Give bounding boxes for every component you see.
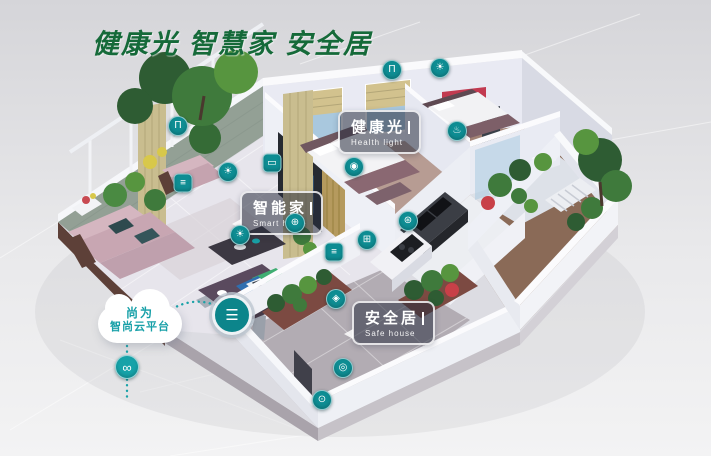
- cursor-bar: [422, 312, 424, 325]
- callout-health-light-en: Health light: [351, 138, 410, 147]
- cloud-platform-subtitle: 智尚云平台: [98, 321, 182, 335]
- callout-safe-house-en: Safe house: [365, 329, 424, 338]
- cloud-platform-badge: 尚为 智尚云平台: [98, 305, 182, 343]
- cloud-platform-name: 尚为: [98, 306, 182, 321]
- callout-smart-home: 智能家 Smart home: [240, 191, 323, 235]
- callout-pointer: [232, 219, 241, 229]
- house-3d-render: [0, 0, 711, 456]
- callout-health-light: 健康光 Health light: [338, 110, 421, 154]
- cursor-bar: [310, 202, 312, 215]
- callout-smart-home-zh: 智能家: [253, 200, 307, 217]
- callout-health-light-zh: 健康光: [351, 119, 405, 136]
- smart-home-promo: 健康光 智慧家 安全居 尚为 智尚云平台 健康光 Health light 智能…: [0, 0, 711, 456]
- page-title: 健康光 智慧家 安全居: [92, 22, 372, 61]
- callout-safe-house-zh: 安全居: [365, 310, 419, 327]
- callout-safe-house: 安全居 Safe house: [352, 301, 435, 345]
- cursor-bar: [408, 121, 410, 134]
- callout-smart-home-en: Smart home: [253, 219, 312, 228]
- callout-pointer: [330, 138, 339, 148]
- callout-pointer: [344, 329, 353, 339]
